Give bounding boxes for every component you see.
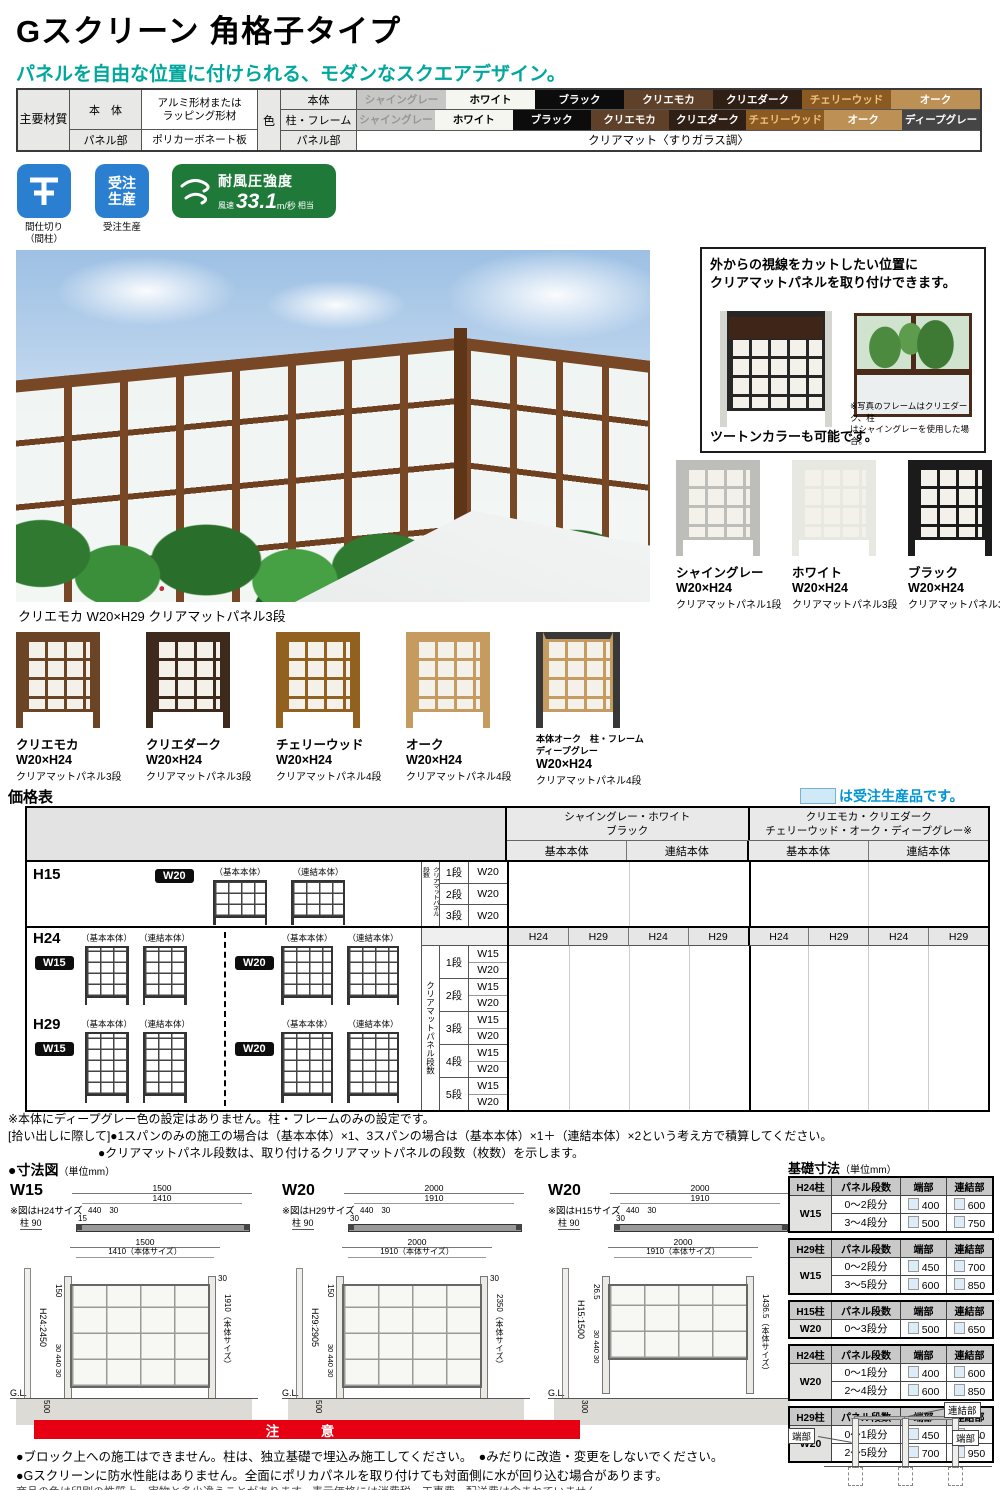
dim-label: 150 [54,1284,63,1297]
mini-screen-image [16,632,100,728]
front-view: 1500 1410（本体サイズ） 150 H24:2450 30 440 30 … [10,1238,272,1438]
foundation-joint-value: 600 [946,1196,993,1214]
height-subheader-cell: H29 [688,928,748,946]
partition-badge-label: 間仕切り（間柱） [16,222,72,247]
foundation-header-cell: 端部 [901,1345,947,1364]
partition-badge: 間仕切り（間柱） [16,164,72,247]
variation-panel-count: クリアマットパネル3段 [908,596,1000,611]
price-column-line [569,946,570,1110]
order-marker-icon [954,1278,965,1290]
variation-name: シャイングレー [676,562,784,581]
stage-group: 3段W15W20 [440,1012,507,1045]
height-subheader-cell: H29 [928,928,988,946]
variation-name: 本体オーク 柱・フレームディープグレー [536,734,644,757]
h24-h29-price-area [509,946,988,1110]
foundation-width-cell: W20 [789,1320,832,1339]
price-subcolumns: 基本本体連結本体基本本体連結本体 [507,841,988,860]
foundation-edge-value: 600 [901,1382,947,1401]
stage-count: 2段 [440,979,469,1011]
catalog-page: Gスクリーン 角格子タイプ パネルを自由な位置に付けられる、モダンなスクエアデザ… [0,0,1000,1490]
price-note-1: ※本体にディープグレー色の設定はありません。柱・フレームのみの設定です。 [8,1110,435,1127]
h15-diagram-cell: H15 W20 （基本本体） （連結本体） [27,862,422,926]
panel-stage-vertical-label: クリアマットパネル段数 [422,862,440,926]
caution-banner: 注 意 [34,1420,580,1439]
price-band-h15: H15 W20 （基本本体） （連結本体） クリアマットパネル段数 1段W202… [27,860,988,926]
lattice-body [608,1284,748,1360]
top-view-bar [614,1224,788,1232]
stage-count: 2段 [440,884,469,905]
info-panel-title: 外からの視線をカットしたい位置にクリアマットパネルを取り付けできます。 [710,256,976,291]
price-subcolumn: 基本本体 [747,841,868,860]
variation-size: W20×H24 [792,581,900,595]
order-marker-icon [954,1322,965,1334]
color-row-body: 本体 シャイングレーホワイトブラッククリエモカクリエダークチェリーウッドオーク [281,90,980,110]
foundation-diagram: 端部 連結部 端部 [788,1400,992,1488]
stage-width: W15 [469,946,507,963]
dim-label: 1910 [354,1194,514,1204]
made-to-order-icon: 受注生産 [95,164,149,218]
joint-label: 連結部 [944,1402,981,1418]
foundation-stage-cell: 0～3段分 [832,1320,901,1339]
height-subheader-cell: H29 [568,928,628,946]
dim-label: 柱 90 [558,1216,580,1230]
price-note-3: ●クリアマットパネル段数は、取り付けるクリアマットパネルの段数（枚数）を示します… [98,1144,584,1161]
panel-color-value: クリアマット〈すりガラス調〉 [357,131,980,150]
variation-panel-count: クリアマットパネル4段 [406,768,514,783]
dim-label: H15:1500 [576,1300,586,1339]
top-view: 2000 1910 440 30 30 柱 90 [344,1184,524,1232]
variation-panel-count: クリアマットパネル4段 [276,768,384,783]
foundation-width-cell: W15 [789,1196,832,1233]
foundation-header-cell: 連結部 [946,1345,993,1364]
foundation-header-cell: H15柱 [789,1301,832,1320]
dim-label: H24:2450 [38,1308,48,1347]
price-table: シャイングレー・ホワイトブラック クリエモカ・クリエダークチェリーウッド・オーク… [25,806,990,1112]
foundation-stage-cell: 3～5段分 [832,1276,901,1295]
color-swatch: ホワイト [435,110,513,129]
order-marker-icon [908,1366,919,1378]
w15-badge: W15 [35,956,74,970]
foundation-joint-value: 750 [946,1214,993,1233]
height-subheader-cell: H24 [748,928,809,946]
materials-body-label: 本 体 [70,90,142,130]
color-swatch: ディープグレー [902,110,980,129]
color-swatch: ホワイト [446,90,535,109]
color-swatch: クリエモカ [624,90,713,109]
caution-line-2: ●Gスクリーンに防水性能はありません。全面にポリカパネルを取り付けても対面側に水… [16,1465,668,1484]
foundation-edge-value: 400 [901,1196,947,1214]
foundation-edge-value: 500 [901,1214,947,1233]
lattice-body [70,1284,210,1388]
dimension-diagram-w20-h15: W20 ※図はH15サイズ 2000 1910 440 30 30 柱 90 2… [548,1182,810,1444]
top-view: 2000 1910 440 30 30 柱 90 [610,1184,790,1232]
order-marker-icon [908,1260,919,1272]
page-footer-note: 商品の色は印刷の性質上、実物と多少違うことがあります。表示価格には消費税・工事費… [16,1483,608,1490]
stage-row: 3段W20 [440,905,507,926]
color-variation-card: クリエモカW20×H24クリアマットパネル3段 [16,632,124,787]
foundation-header-cell: 端部 [901,1177,947,1196]
dimension-diagram-w15-h24: W15 ※図はH24サイズ 1500 1410 440 30 15 柱 90 1… [10,1182,272,1444]
stage-width: W20 [469,1095,507,1111]
stage-group: 4段W15W20 [440,1045,507,1078]
hero-caption: クリエモカ W20×H29 クリアマットパネル3段 [18,606,286,625]
stage-row: 2段W20 [440,884,507,906]
stage-width: W20 [469,963,507,979]
materials-main-label: 主要材質 [18,90,70,150]
variation-name: ブラック [908,562,1000,581]
order-marker-icon [908,1198,919,1210]
dim-label: 30 440 30 [326,1344,335,1377]
stage-row: 1段W20 [440,862,507,884]
price-group-2: クリエモカ・クリエダークチェリーウッド・オーク・ディープグレー※ [748,808,989,840]
foundation-table: H29柱パネル段数端部連結部W150～2段分4507003～5段分600850 [788,1238,994,1295]
foundation-heading: 基礎寸法（単位mm） [788,1158,897,1177]
variation-size: W20×H24 [146,753,254,767]
price-column-line [868,946,869,1110]
foundation-header-cell: H24柱 [789,1345,832,1364]
foundation-header-cell: H29柱 [789,1239,832,1258]
mini-screen-image [908,460,992,556]
height-subheader-cell: H24 [509,928,568,946]
stage-count: 4段 [440,1045,469,1077]
color-variation-card: チェリーウッドW20×H24クリアマットパネル4段 [276,632,384,787]
dimension-diagram-w20-h29: W20 ※図はH29サイズ 2000 1910 440 30 30 柱 90 2… [282,1182,544,1444]
stage-count: 1段 [440,946,469,978]
price-table-heading: 価格表 [8,786,53,807]
price-column-line [749,946,751,1110]
dim-label: 440 30 [626,1205,656,1216]
variation-size: W20×H24 [406,753,514,767]
materials-panel-label: パネル部 [70,130,142,150]
variation-name: クリエモカ [16,734,124,753]
foundation-table: H24柱パネル段数端部連結部W150～2段分4006003～4段分500750 [788,1176,994,1233]
stage-group: 5段W15W20 [440,1078,507,1110]
materials-color-table: 主要材質 本 体 パネル部 アルミ形材またはラッピング形材 ポリカーボネート板 … [16,88,982,152]
foundation-stage-cell: 0～1段分 [832,1364,901,1382]
foundation-header-cell: 端部 [901,1301,947,1320]
mini-screen-image [276,632,360,728]
dim-label: 30 [490,1274,499,1283]
stage-width: W20 [469,1029,507,1045]
stage-count: 3段 [440,905,469,926]
price-note-2: [拾い出しに際して]●1スパンのみの施工の場合は（基本本体）×1、3スパンの場合… [8,1127,832,1144]
mini-screen-image [146,632,230,728]
dim-label: H29:2905 [310,1308,320,1347]
color-swatch: ブラック [535,90,624,109]
stage-width: W20 [469,862,507,883]
foundation-row: W150～2段分450700 [789,1258,993,1276]
price-subcolumn: 連結本体 [626,841,746,860]
foundation-header-cell: パネル段数 [832,1345,901,1364]
order-marker-icon [908,1278,919,1290]
made-to-order-badge: 受注生産 受注生産 [94,164,150,234]
stage-width: W15 [469,1078,507,1095]
variation-panel-count: クリアマットパネル3段 [792,596,900,611]
color-swatch: チェリーウッド [802,90,891,109]
partition-icon [17,164,71,218]
edge-label-left: 端部 [788,1428,815,1444]
color-variations-right: シャイングレーW20×H24クリアマットパネル1段ホワイトW20×H24クリアマ… [676,460,1000,611]
page-subtitle: パネルを自由な位置に付けられる、モダンなスクエアデザイン。 [16,59,566,86]
foundation-header-cell: パネル段数 [832,1301,901,1320]
order-marker-icon [954,1260,965,1272]
foundation-stage-cell: 3～4段分 [832,1214,901,1233]
stage-group: 1段W15W20 [440,946,507,979]
stage-width: W20 [469,884,507,905]
variation-size: W20×H24 [676,581,784,595]
stage-width: W20 [469,1062,507,1078]
stage-header-spacer [422,928,507,946]
height-subheader-cell: H24 [868,928,928,946]
foundation-header-cell: パネル段数 [832,1239,901,1258]
free-post [296,1268,303,1400]
dim-label: 1410 [82,1194,242,1204]
basic-unit-diagram: （基本本体） [213,866,267,918]
stage-width: W15 [469,979,507,996]
mini-screen-image [536,632,620,728]
foundation-stage-cell: 0～2段分 [832,1258,901,1276]
color-variation-card: ホワイトW20×H24クリアマットパネル3段 [792,460,900,611]
order-marker-icon [800,788,836,804]
mini-screen-image [792,460,876,556]
color-swatch: シャイングレー [357,110,435,129]
w15-badge: W15 [35,1042,74,1056]
stage-width: W20 [469,905,507,926]
dimensions-heading: ●寸法図（単位mm） [8,1160,115,1180]
made-to-order-badge-label: 受注生産 [94,222,150,234]
stage-count: 5段 [440,1078,469,1110]
h24-h29-stage-rows: 1段W15W202段W15W203段W15W204段W15W205段W15W20 [440,946,507,1110]
h24-h29-diagram-cell: H24 W15 （基本本体） （連結本体） W20 （基本本体） （連結本体） [27,928,422,1110]
dim-label: 柱 90 [20,1216,42,1230]
color-swatch: シャイングレー [357,90,446,109]
dim-label: 1910（本体サイズ） [222,1294,233,1368]
color-row-panel: パネル部 クリアマット〈すりガラス調〉 [281,131,980,150]
ground [554,1399,790,1425]
h15-price-area [507,862,988,926]
dim-label: 1436.5（本体サイズ） [760,1294,771,1374]
hero-photo [16,250,650,602]
price-column-line [749,862,751,926]
wind-resistance-badge: 耐風圧強度 風速33.1m/秒相当 [172,164,336,218]
foundation-header-cell: パネル段数 [832,1177,901,1196]
materials-panel-value: ポリカーボネート板 [142,130,258,150]
foundation-joint-value: 850 [946,1276,993,1295]
dim-label: 1410（本体サイズ） [76,1248,214,1258]
color-variation-card: 本体オーク 柱・フレームディープグレーW20×H24クリアマットパネル4段 [536,632,644,787]
dim-label: 440 30 [360,1205,390,1216]
edge-label-right: 端部 [952,1430,979,1446]
dim-label: G.L. [282,1388,299,1398]
foundation-joint-value: 600 [946,1364,993,1382]
foundation-edge-value: 500 [901,1320,947,1339]
order-marker-icon [954,1384,965,1396]
joint-unit-diagram: （連結本体） [291,866,345,918]
order-marker-icon [908,1322,919,1334]
dim-label: G.L. [10,1388,27,1398]
h24-h29-subheader: H24H29H24H29H24H29H24H29 [509,928,988,946]
stage-width: W15 [469,1012,507,1029]
dim-label: 150 [326,1284,335,1297]
price-group-1: シャイングレー・ホワイトブラック [507,808,748,840]
dim-label: 26.5 [592,1284,601,1300]
front-view: 2000 1910（本体サイズ） 150 H29:2905 30 440 30 … [282,1238,544,1438]
variation-name: ホワイト [792,562,900,581]
color-row-frame: 柱・フレーム シャイングレーホワイトブラッククリエモカクリエダークチェリーウッド… [281,110,980,130]
price-column-line [629,946,630,1110]
variation-panel-count: クリアマットパネル3段 [146,768,254,783]
stage-width: W15 [469,1045,507,1062]
foundation-stage-cell: 0～2段分 [832,1196,901,1214]
foundation-table: H15柱パネル段数端部連結部W200～3段分500650 [788,1300,994,1339]
made-to-order-legend: は受注生産品です。 [800,786,964,806]
variation-name: チェリーウッド [276,734,384,753]
color-swatch: オーク [891,90,980,109]
price-subcolumn: 連結本体 [868,841,988,860]
wind-badge-title: 耐風圧強度 [218,171,314,191]
foundation-row: W200～1段分400600 [789,1364,993,1382]
dim-label: 2350（本体サイズ） [494,1294,505,1368]
photo-note-caption: ※写真のフレームはクリエダーク、柱はシャイングレーを使用した場合。 [850,401,982,447]
stage-group: 2段W15W20 [440,979,507,1012]
stage-count: 3段 [440,1012,469,1044]
foundation-header-cell: 連結部 [946,1177,993,1196]
price-column-line [868,862,869,926]
price-band-h24-h29: H24 W15 （基本本体） （連結本体） W20 （基本本体） （連結本体） [27,926,988,1110]
top-view-bar [348,1224,522,1232]
foundation-header-cell: 連結部 [946,1301,993,1320]
variation-panel-count: クリアマットパネル4段 [536,772,644,787]
free-post [24,1268,31,1400]
foundation-row: W150～2段分400600 [789,1196,993,1214]
top-view: 1500 1410 440 30 15 柱 90 [72,1184,252,1232]
foundation-edge-value: 600 [901,1276,947,1295]
dim-label: 500 [42,1400,51,1413]
foundation-edge-value: 400 [901,1364,947,1382]
color-swatch: クリエダーク [669,110,747,129]
price-subcolumn: 基本本体 [507,841,626,860]
materials-body-value: アルミ形材またはラッピング形材 [142,90,258,130]
foundation-width-cell: W15 [789,1258,832,1295]
color-variation-card: クリエダークW20×H24クリアマットパネル3段 [146,632,254,787]
color-swatch: クリエモカ [591,110,669,129]
foundation-width-cell: W20 [789,1364,832,1401]
dim-label: 1910（本体サイズ） [614,1248,752,1258]
order-marker-icon [954,1198,965,1210]
foundation-header-cell: H24柱 [789,1177,832,1196]
dim-label: 500 [314,1400,323,1413]
w20-badge: W20 [155,869,194,883]
dim-label: 1910（本体サイズ） [348,1248,486,1258]
color-swatch: オーク [824,110,902,129]
price-column-line [928,946,929,1110]
diagram-divider [224,932,226,1106]
dim-label: 300 [580,1400,589,1413]
color-variation-card: ブラックW20×H24クリアマットパネル3段 [908,460,1000,611]
page-title: Gスクリーン 角格子タイプ [16,6,401,51]
dim-label: 440 30 [88,1205,118,1216]
top-view-bar [76,1224,250,1232]
foundation-header-cell: 端部 [901,1239,947,1258]
price-column-line [689,946,690,1110]
variation-size: W20×H24 [908,581,1000,595]
stage-count: 1段 [440,862,469,883]
variation-panel-count: クリアマットパネル3段 [16,768,124,783]
mini-screen-image [406,632,490,728]
color-variation-card: シャイングレーW20×H24クリアマットパネル1段 [676,460,784,611]
foundation-row: W200～3段分500650 [789,1320,993,1339]
lattice-body [342,1284,482,1388]
variation-name: クリエダーク [146,734,254,753]
variation-size: W20×H24 [276,753,384,767]
foundation-joint-value: 850 [946,1382,993,1401]
color-column-label: 色 [258,90,281,150]
foundation-table: H24柱パネル段数端部連結部W200～1段分4006002～4段分600850 [788,1344,994,1401]
order-marker-icon [908,1216,919,1228]
variation-size: W20×H24 [536,757,644,771]
dim-label: 30 [350,1214,359,1223]
price-column-line [629,862,630,926]
dim-label: 30 440 30 [592,1330,601,1363]
dim-label: 30 440 30 [54,1344,63,1377]
color-variations-bottom: クリエモカW20×H24クリアマットパネル3段クリエダークW20×H24クリアマ… [16,632,644,787]
variation-size: W20×H24 [16,753,124,767]
order-marker-icon [954,1366,965,1378]
wind-badge-value: 風速33.1m/秒相当 [218,191,314,212]
order-marker-icon [908,1384,919,1396]
dim-label: 30 [218,1274,227,1283]
variation-name: オーク [406,734,514,753]
height-subheader-cell: H24 [628,928,688,946]
foundation-header-cell: 連結部 [946,1239,993,1258]
dim-label: 30 [616,1214,625,1223]
foundation-joint-value: 700 [946,1258,993,1276]
foundation-joint-value: 650 [946,1320,993,1339]
mini-screen-image [676,460,760,556]
clear-matte-info-panel: 外からの視線をカットしたい位置にクリアマットパネルを取り付けできます。 ツートン… [700,247,986,453]
h15-stage-rows: 1段W202段W203段W20 [440,862,507,926]
color-swatch: ブラック [513,110,591,129]
dim-label: 柱 90 [292,1216,314,1230]
dim-label: 15 [78,1214,87,1223]
foundation-stage-cell: 2～4段分 [832,1382,901,1401]
foundation-edge-value: 450 [901,1258,947,1276]
price-column-line [808,946,809,1110]
dim-label: 1910 [620,1194,780,1204]
price-header-empty [27,808,507,860]
panel-stage-vertical-label: クリアマットパネル段数 [422,946,440,1110]
wind-icon [180,176,212,206]
dim-label: G.L. [548,1388,565,1398]
free-post [562,1268,569,1400]
two-tone-screen-image [720,311,832,427]
color-swatch: チェリーウッド [746,110,824,129]
order-marker-icon [954,1216,965,1228]
front-view: 2000 1910（本体サイズ） 26.5 H15:1500 30 440 30… [548,1238,810,1438]
w20-badge: W20 [235,1042,274,1056]
color-swatch: クリエダーク [713,90,802,109]
color-variation-card: オークW20×H24クリアマットパネル4段 [406,632,514,787]
w20-badge: W20 [235,956,274,970]
variation-panel-count: クリアマットパネル1段 [676,596,784,611]
caution-line-1: ●ブロック上への施工はできません。柱は、独立基礎で埋込み施工してください。 ●み… [16,1446,723,1465]
stage-width: W20 [469,996,507,1012]
height-subheader-cell: H29 [808,928,868,946]
